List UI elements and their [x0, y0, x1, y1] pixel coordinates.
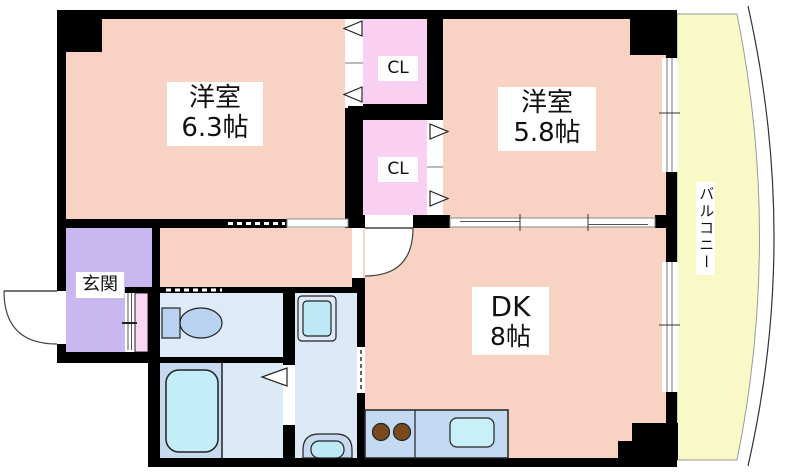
balcony-area	[677, 6, 774, 466]
room-western1-name: 洋室	[189, 84, 241, 114]
closet-upper-label: CL	[378, 56, 418, 81]
floorplan: 洋室 6.3帖 洋室 5.8帖 CL CL 玄関 DK 8帖 バルコニー	[0, 0, 800, 472]
entrance-text: 玄関	[82, 275, 118, 296]
entrance-door-swing	[4, 291, 57, 344]
closet-upper-text: CL	[387, 59, 408, 79]
stove-burner-2	[394, 424, 411, 441]
bathtub-fixture	[166, 370, 218, 452]
washer-pan-inner	[303, 301, 331, 336]
window-dk	[662, 262, 678, 392]
kitchen-sink	[450, 418, 494, 447]
closet-lower-label: CL	[378, 157, 418, 182]
balcony-label: バルコニー	[696, 182, 715, 275]
entrance-door-opening	[57, 291, 66, 344]
room-western2-size: 5.8帖	[513, 119, 580, 149]
room-western1-label: 洋室 6.3帖	[167, 82, 263, 146]
stove-burner-1	[373, 424, 390, 441]
window-western2	[662, 58, 678, 172]
balcony-floor	[677, 14, 760, 460]
hallway-floor	[160, 228, 352, 287]
balcony-text: バルコニー	[697, 186, 714, 271]
washbasin-bowl	[311, 441, 344, 458]
room-dk-size: 8帖	[490, 323, 531, 352]
dk-door-opening	[365, 215, 413, 228]
room-dk-name: DK	[491, 291, 531, 323]
room-dk-label: DK 8帖	[472, 287, 549, 355]
toilet-bowl-fixture	[180, 308, 222, 338]
toilet-tank-fixture	[162, 308, 180, 338]
room-western2-label: 洋室 5.8帖	[498, 87, 596, 151]
room-western1-size: 6.3帖	[181, 114, 248, 144]
sliding-door-panel	[287, 219, 348, 227]
entrance-label: 玄関	[76, 272, 124, 298]
room-western2-name: 洋室	[521, 89, 573, 119]
sliding-door-western2-dk	[450, 218, 655, 227]
closet-lower-text: CL	[387, 160, 408, 180]
